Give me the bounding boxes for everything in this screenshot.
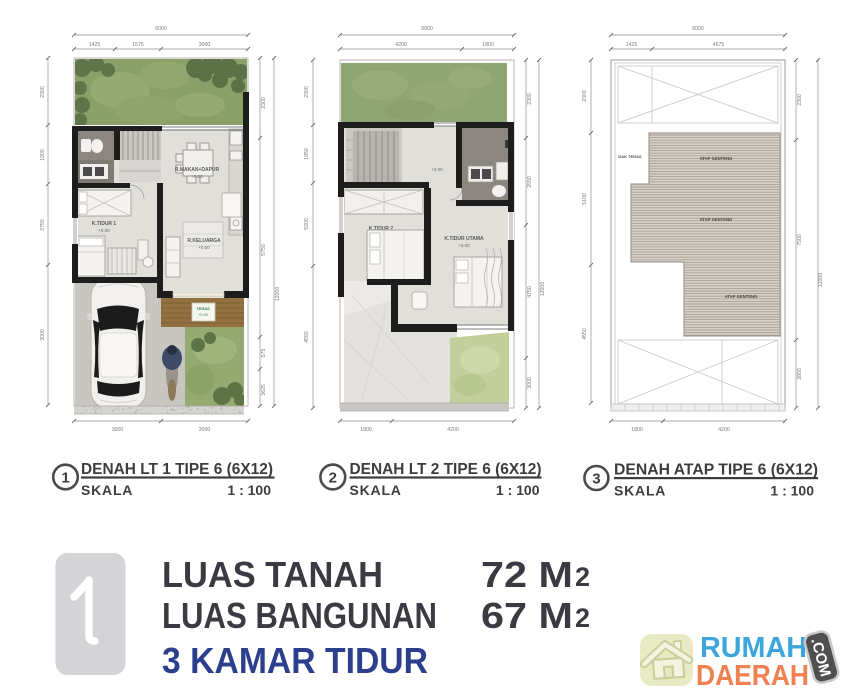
svg-text:1800: 1800 — [482, 42, 494, 48]
svg-text:1 : 100: 1 : 100 — [227, 482, 271, 498]
svg-text:3000: 3000 — [199, 42, 211, 48]
svg-text:4550: 4550 — [582, 328, 588, 340]
svg-text:R.KELUARGA: R.KELUARGA — [187, 238, 221, 244]
svg-text:TERAS: TERAS — [196, 306, 210, 311]
svg-text:3625: 3625 — [261, 384, 267, 396]
svg-text:2: 2 — [575, 603, 590, 633]
svg-text:ATAP GENTENG: ATAP GENTENG — [725, 294, 758, 299]
svg-text:2300: 2300 — [304, 86, 310, 98]
svg-text:6000: 6000 — [421, 26, 433, 32]
svg-text:5750: 5750 — [261, 244, 267, 256]
svg-text:3 KAMAR TIDUR: 3 KAMAR TIDUR — [162, 640, 428, 681]
svg-text:+0.05: +0.05 — [198, 313, 208, 317]
svg-text:1575: 1575 — [132, 42, 144, 48]
svg-text:K.TIDUR UTAMA: K.TIDUR UTAMA — [444, 236, 484, 242]
svg-text:5200: 5200 — [304, 218, 310, 230]
svg-text:DENAH LT 2 TIPE 6 (6X12): DENAH LT 2 TIPE 6 (6X12) — [350, 461, 542, 478]
svg-text:3000: 3000 — [112, 427, 124, 433]
svg-text:2: 2 — [575, 562, 590, 592]
svg-text:6000: 6000 — [692, 26, 704, 32]
svg-text:1 : 100: 1 : 100 — [770, 483, 814, 499]
svg-text:DAK TERAS: DAK TERAS — [618, 154, 642, 159]
svg-text:SKALA: SKALA — [81, 482, 133, 498]
svg-text:DAERAH: DAERAH — [696, 660, 809, 692]
svg-text:2300: 2300 — [527, 93, 533, 105]
svg-text:12000: 12000 — [275, 287, 281, 302]
svg-text:2: 2 — [329, 470, 337, 487]
svg-text:1900: 1900 — [40, 149, 46, 161]
svg-text:7500: 7500 — [797, 234, 803, 246]
svg-text:SKALA: SKALA — [614, 483, 666, 499]
svg-text:4550: 4550 — [304, 331, 310, 343]
svg-text:DENAH ATAP TIPE 6 (6X12): DENAH ATAP TIPE 6 (6X12) — [614, 462, 818, 479]
svg-text:2800: 2800 — [797, 368, 803, 380]
svg-text:1800: 1800 — [631, 427, 643, 433]
svg-text:SKALA: SKALA — [350, 482, 402, 498]
svg-text:12000: 12000 — [540, 282, 546, 297]
svg-text:3000: 3000 — [527, 377, 533, 389]
svg-text:2550: 2550 — [527, 176, 533, 188]
svg-text:72 M: 72 M — [481, 554, 573, 595]
svg-text:3000: 3000 — [199, 427, 211, 433]
svg-text:4750: 4750 — [527, 286, 533, 298]
svg-text:2300: 2300 — [797, 94, 803, 106]
svg-text:4200: 4200 — [447, 427, 459, 433]
svg-text:+3.00: +3.00 — [431, 167, 443, 172]
svg-text:+0.00: +0.00 — [98, 228, 110, 233]
svg-text:+0.00: +0.00 — [191, 174, 203, 179]
svg-text:1425: 1425 — [626, 42, 638, 48]
svg-text:3: 3 — [592, 471, 600, 488]
svg-text:1 : 100: 1 : 100 — [496, 482, 540, 498]
svg-text:1: 1 — [61, 470, 69, 487]
svg-text:+0.00: +0.00 — [198, 245, 210, 250]
svg-text:LUAS TANAH: LUAS TANAH — [162, 554, 383, 595]
svg-text:2300: 2300 — [40, 86, 46, 98]
svg-text:1425: 1425 — [89, 42, 101, 48]
svg-text:12000: 12000 — [818, 273, 824, 288]
svg-text:4200: 4200 — [395, 42, 407, 48]
svg-text:5100: 5100 — [582, 193, 588, 205]
svg-text:67 M: 67 M — [481, 595, 573, 636]
svg-text:+3.00: +3.00 — [458, 243, 470, 248]
svg-text:2300: 2300 — [582, 90, 588, 102]
svg-text:575: 575 — [261, 349, 267, 358]
svg-text:2300: 2300 — [261, 97, 267, 109]
svg-text:DENAH LT 1 TIPE 6 (6X12): DENAH LT 1 TIPE 6 (6X12) — [81, 461, 273, 478]
svg-text:1800: 1800 — [360, 427, 372, 433]
svg-text:4200: 4200 — [718, 427, 730, 433]
svg-text:1950: 1950 — [304, 148, 310, 160]
svg-text:ATAP GENTENG: ATAP GENTENG — [700, 217, 733, 222]
svg-text:4575: 4575 — [713, 42, 725, 48]
svg-text:2750: 2750 — [40, 219, 46, 231]
svg-text:R.MAKAN+DAPUR: R.MAKAN+DAPUR — [175, 167, 220, 173]
svg-text:6000: 6000 — [155, 26, 167, 32]
svg-text:3000: 3000 — [40, 329, 46, 341]
svg-text:ATAP GENTENG: ATAP GENTENG — [700, 156, 733, 161]
svg-text:K.TIDUR 1: K.TIDUR 1 — [92, 221, 117, 227]
svg-text:LUAS BANGUNAN: LUAS BANGUNAN — [162, 595, 437, 636]
